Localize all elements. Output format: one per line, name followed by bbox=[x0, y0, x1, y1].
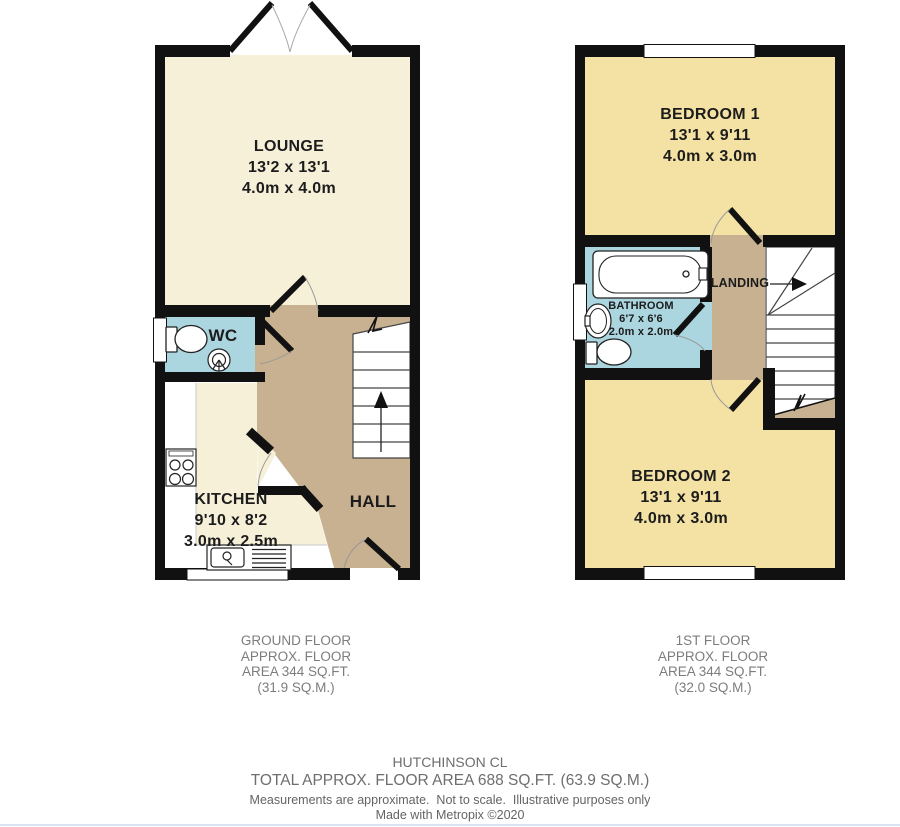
bedroom2-doorway-floor bbox=[712, 368, 763, 380]
room-dims-metric: 4.0m x 3.0m bbox=[660, 146, 760, 167]
room-name: BATHROOM bbox=[608, 300, 674, 313]
room-dims-imperial: 9'10 x 8'2 bbox=[184, 510, 278, 531]
bathroom-window bbox=[574, 284, 587, 340]
caption-line: (31.9 SQ.M.) bbox=[241, 680, 351, 696]
room-name: KITCHEN bbox=[184, 489, 278, 510]
disclaimer-text: Measurements are approximate. Not to sca… bbox=[0, 793, 900, 807]
first-floor-stairs bbox=[766, 247, 835, 418]
first-floor-caption: 1ST FLOOR APPROX. FLOOR AREA 344 SQ.FT. … bbox=[658, 633, 768, 695]
room-dims-metric: 4.0m x 3.0m bbox=[631, 508, 731, 529]
total-floor-area: TOTAL APPROX. FLOOR AREA 688 SQ.FT. (63.… bbox=[0, 772, 900, 790]
caption-line: AREA 344 SQ.FT. bbox=[241, 664, 351, 680]
caption-line: (32.0 SQ.M.) bbox=[658, 680, 768, 696]
caption-line: APPROX. FLOOR bbox=[241, 649, 351, 665]
ground-floor-caption: GROUND FLOOR APPROX. FLOOR AREA 344 SQ.F… bbox=[241, 633, 351, 695]
room-dims-metric: 2.0m x 2.0m bbox=[608, 326, 674, 339]
bathroom-toilet-icon bbox=[586, 339, 631, 365]
kitchen-hob-icon bbox=[166, 449, 196, 486]
room-dims-imperial: 6'7 x 6'6 bbox=[608, 313, 674, 326]
kitchen-window bbox=[187, 569, 288, 580]
footer-block: HUTCHINSON CL TOTAL APPROX. FLOOR AREA 6… bbox=[0, 754, 900, 822]
room-dims-metric: 3.0m x 2.5m bbox=[184, 531, 278, 552]
french-door-leaf bbox=[310, 3, 352, 51]
room-name: LOUNGE bbox=[242, 136, 336, 157]
floorplan-svg bbox=[0, 0, 900, 827]
wc-toilet-icon bbox=[166, 326, 207, 353]
wc-sink-icon bbox=[208, 349, 230, 371]
french-door-leaf bbox=[230, 3, 272, 51]
kitchen-label: KITCHEN 9'10 x 8'2 3.0m x 2.5m bbox=[184, 489, 278, 552]
caption-line: 1ST FLOOR bbox=[658, 633, 768, 649]
landing-label: LANDING bbox=[711, 277, 769, 290]
caption-line: AREA 344 SQ.FT. bbox=[658, 664, 768, 680]
room-name: WC bbox=[209, 325, 238, 346]
lounge-label: LOUNGE 13'2 x 13'1 4.0m x 4.0m bbox=[242, 136, 336, 199]
room-name: BEDROOM 2 bbox=[631, 466, 731, 487]
bathroom-sink-icon bbox=[585, 304, 611, 338]
bath-icon bbox=[593, 251, 708, 298]
bedroom2-label: BEDROOM 2 13'1 x 9'11 4.0m x 3.0m bbox=[631, 466, 731, 529]
bedroom1-window bbox=[644, 45, 755, 58]
room-dims-metric: 4.0m x 4.0m bbox=[242, 178, 336, 199]
room-dims-imperial: 13'1 x 9'11 bbox=[631, 487, 731, 508]
bedroom2-window bbox=[644, 567, 755, 580]
room-dims-imperial: 13'2 x 13'1 bbox=[242, 157, 336, 178]
bottom-divider bbox=[0, 824, 900, 826]
hall-label: HALL bbox=[350, 491, 397, 512]
room-dims-imperial: 13'1 x 9'11 bbox=[660, 125, 760, 146]
bedroom1-label: BEDROOM 1 13'1 x 9'11 4.0m x 3.0m bbox=[660, 104, 760, 167]
bathroom-label: BATHROOM 6'7 x 6'6 2.0m x 2.0m bbox=[608, 300, 674, 339]
credit-text: Made with Metropix ©2020 bbox=[0, 808, 900, 822]
floorplan-page: { "colors": { "floor_cream": "#F6F0D9", … bbox=[0, 0, 900, 827]
caption-line: APPROX. FLOOR bbox=[658, 649, 768, 665]
wc-label: WC bbox=[209, 325, 238, 346]
room-name: BEDROOM 1 bbox=[660, 104, 760, 125]
property-address: HUTCHINSON CL bbox=[0, 754, 900, 770]
room-name: HALL bbox=[350, 491, 397, 512]
room-name: LANDING bbox=[711, 277, 769, 290]
wc-window bbox=[154, 318, 167, 362]
landing-floor bbox=[712, 235, 765, 377]
ground-floor-stairs bbox=[353, 316, 410, 458]
caption-line: GROUND FLOOR bbox=[241, 633, 351, 649]
